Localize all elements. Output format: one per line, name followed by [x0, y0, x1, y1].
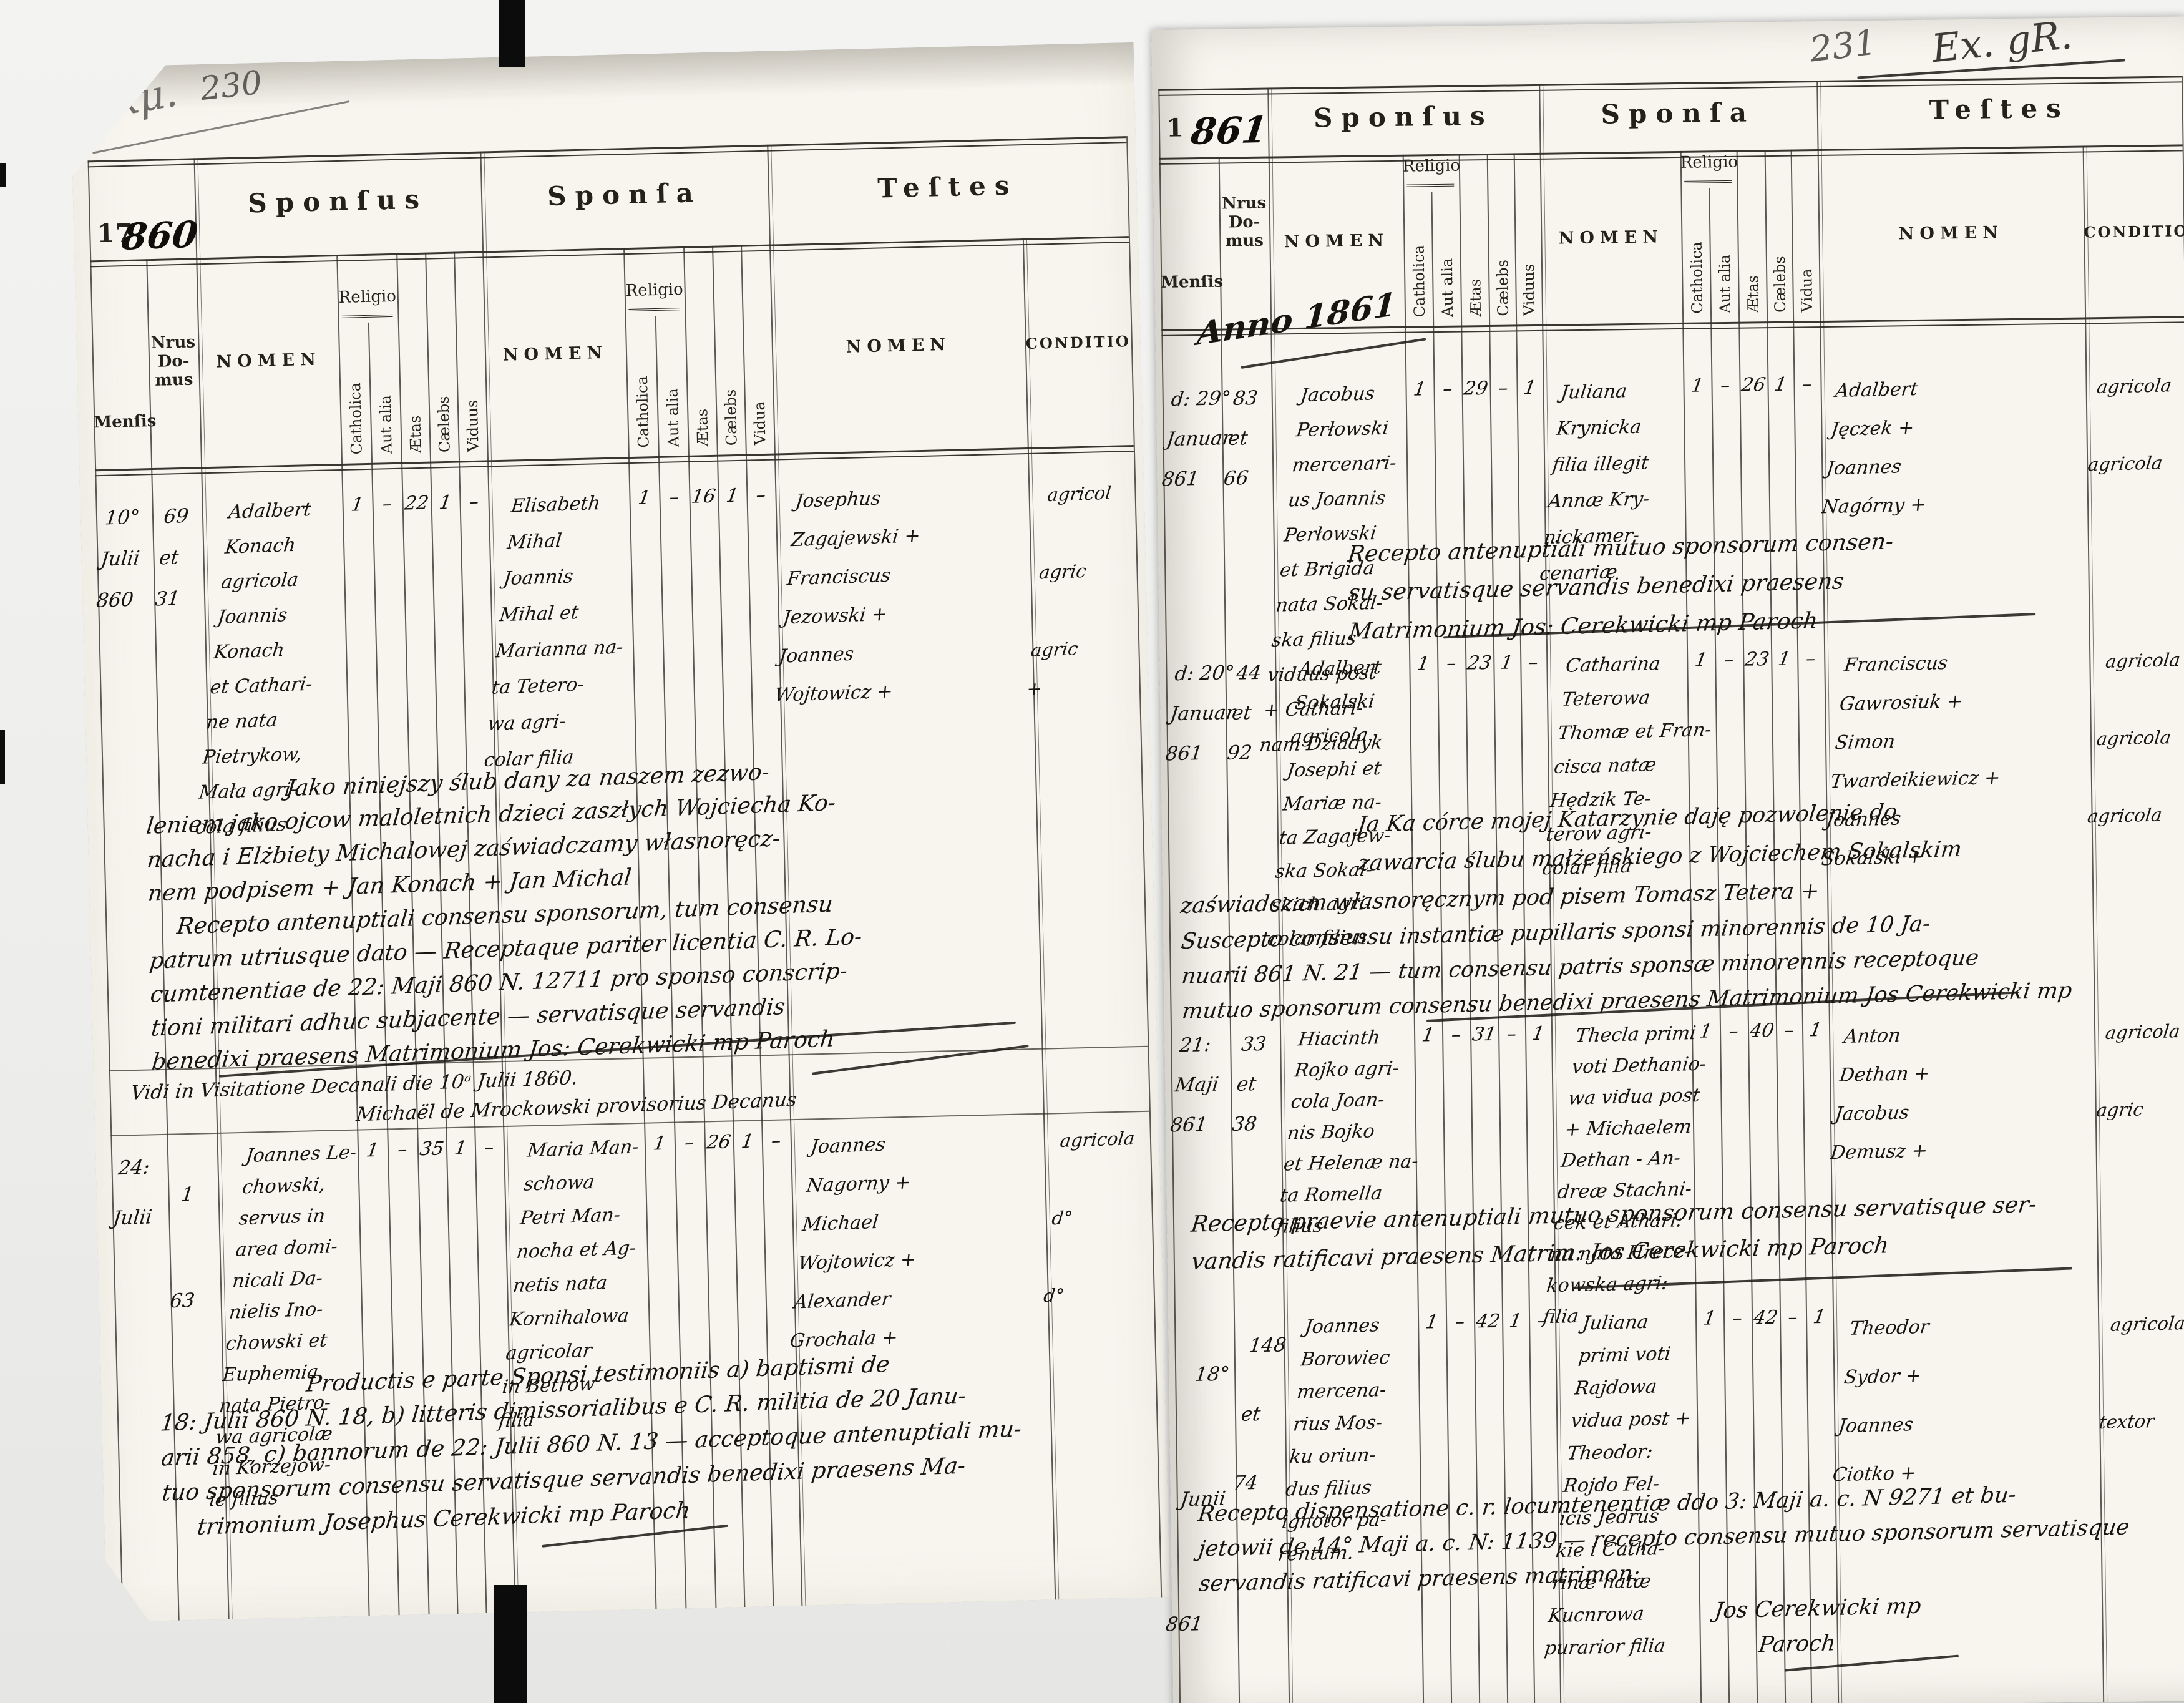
record-1-sponsus-mark: 22	[401, 492, 432, 514]
header-sponsa: Sponſa	[481, 176, 769, 213]
horizontal-rule	[90, 236, 1129, 267]
record-4-sponsa-nomen: Juliana primi voti Rajdowa vidua post + …	[1543, 1304, 1743, 1665]
record-1-sponsus-mark: –	[371, 493, 404, 515]
horizontal-rule	[1159, 144, 2183, 164]
header-sponsus: Sponſus	[1268, 100, 1540, 134]
header-aut-alia: Aut alia	[375, 331, 396, 454]
record-3-sponsa-mark: –	[1774, 1019, 1804, 1042]
header-viduus: Viduus	[461, 289, 482, 452]
record-1-sponsus-mark: 29	[1460, 378, 1492, 400]
record-3-sponsa-mark: –	[1718, 1020, 1750, 1043]
header-mensis: Menſis	[1161, 273, 1220, 292]
record-4-sponsus-mark: –	[1527, 1310, 1557, 1332]
header--tas: Ætas	[1743, 187, 1762, 313]
right-page-number: 231	[1808, 22, 1879, 70]
horizontal-rule	[95, 445, 1134, 476]
record-2-sponsus-mark: –	[1435, 652, 1467, 675]
record-1-sponsa-nomen: Elisabeth Mihal Joannis Mihal et Mariann…	[482, 483, 673, 779]
header-testes: Teſtes	[1816, 91, 2182, 127]
header-aut-alia: Aut alia	[1715, 197, 1733, 313]
record-1-sponsus-mark: 1	[1515, 377, 1545, 399]
record-4-sponsa-mark: 42	[1750, 1307, 1782, 1329]
header-nomen-testes: NOMEN	[1818, 222, 2084, 245]
note-line: su servatisque servandis benedixi praese…	[1347, 560, 2184, 607]
header-nomen-testes: NOMEN	[772, 333, 1026, 359]
record-1-sponsus-mark: –	[458, 490, 490, 513]
header-nrus-domus: Nrus Do- mus	[148, 333, 199, 390]
record-1-sponsa-mark: 1	[716, 485, 748, 507]
record-4-sponsus-mark: 1	[1416, 1311, 1448, 1334]
record-4-sponsa-mark: –	[1778, 1306, 1808, 1329]
record-4-sponsa-mark: 1	[1694, 1307, 1725, 1330]
record-4-sponsus-mark: –	[1444, 1310, 1476, 1333]
record-1-sponsa-mark: –	[745, 484, 777, 506]
record-1-sponsus-mark: 1	[429, 491, 461, 514]
header-conditio: CONDITIO	[2084, 222, 2183, 241]
header-viduus: Viduus	[1519, 190, 1538, 316]
header-sponsa: Sponſa	[1539, 96, 1818, 130]
year-handwritten: 861	[1188, 103, 1270, 159]
record-1-sponsus-mark: –	[1432, 378, 1464, 400]
record-4-sponsa-mark: –	[1722, 1307, 1753, 1330]
religio-underline-sponsus	[1406, 184, 1454, 187]
record-1-sponsa-mark: 1	[1682, 374, 1714, 397]
record-3-sponsus-mark: –	[1496, 1023, 1527, 1045]
header-sponsus: Sponſus	[195, 183, 482, 220]
record-1-sponsa-mark: 16	[688, 486, 719, 508]
record-2-sponsus-mark: –	[473, 1136, 505, 1159]
record-3-testes-conditio: agricola agric	[2094, 1011, 2184, 1130]
header-c-lebs: Cælebs	[719, 283, 740, 446]
record-2-sponsa-mark: –	[673, 1131, 706, 1154]
header-c-lebs: Cælebs	[1493, 190, 1512, 316]
record-1-sponsa-mark: –	[658, 486, 691, 509]
record-2-sponsus-mark: 1	[1491, 651, 1522, 674]
column-rule	[88, 160, 124, 1621]
header--tas: Ætas	[1465, 191, 1484, 316]
record-2-sponsa-mark: 1	[731, 1130, 763, 1153]
record-1-sponsa-mark: –	[1792, 373, 1823, 396]
header-nomen-sponsus: NOMEN	[1269, 230, 1403, 251]
note-line: Recepto antenuptiali mutuo sponsorum con…	[1347, 521, 2184, 568]
record-4-sponsus-mark: 42	[1472, 1310, 1504, 1333]
binding-ribbon-top	[499, 0, 525, 67]
year-handwritten: 860	[119, 208, 200, 265]
header-aut-alia: Aut alia	[1437, 200, 1456, 317]
header-c-lebs: Cælebs	[432, 290, 454, 453]
header-nomen-sponsa: NOMEN	[1541, 227, 1681, 248]
record-1-sponsus-mark: –	[1488, 377, 1519, 399]
header-religio-sponsus: Religio	[1403, 157, 1459, 176]
record-3-sponsus-mark: 1	[1523, 1023, 1553, 1045]
record-4-sponsus-mark: 1	[1500, 1310, 1531, 1332]
record-2-sponsus-mark: –	[386, 1138, 419, 1161]
religio-underline-sponsus	[341, 315, 392, 318]
record-1-testes-nomen: Josephus Zagajewski + Franciscus Jezowsk…	[773, 473, 1063, 715]
header-testes: Teſtes	[768, 167, 1128, 207]
note-line: Matrimonium Jos: Cerekwicki mp Paroch	[1347, 598, 2184, 646]
left-page-number: 230	[198, 64, 264, 109]
record-2-sponsa-mark: 1	[1685, 649, 1717, 671]
record-2-sponsus-mark: 1	[356, 1139, 389, 1161]
record-1-sponsa-mark: 1	[1766, 374, 1796, 396]
register-scan: Exμ. 230 17860SponſusSponſaTeſtesMenſisN…	[0, 0, 2184, 1703]
record-2-sponsa-mark: 1	[643, 1133, 676, 1155]
header-catholica: Catholica	[632, 324, 653, 448]
record-2-sponsa-mark: 23	[1741, 648, 1773, 671]
header-religio-sponsus: Religio	[337, 287, 397, 307]
record-4-sponsa-mark: 1	[1804, 1306, 1835, 1329]
header-nrus-domus: Nrus Do- mus	[1219, 194, 1269, 251]
header-nomen-sponsus: NOMEN	[198, 349, 339, 371]
record-2-sponsus-mark: 1	[444, 1137, 476, 1159]
header-mensis: Menſis	[94, 412, 150, 432]
record-2-sponsa-mark: 1	[1769, 648, 1799, 670]
header--tas: Ætas	[404, 290, 425, 454]
record-1-sponsa-mark: 1	[628, 487, 661, 509]
header-nomen-sponsa: NOMEN	[485, 343, 626, 365]
record-2-sponsa-mark: –	[760, 1130, 792, 1152]
header-religio-sponsa: Religio	[1680, 153, 1737, 172]
record-4-testes-nomen: Theodor Sydor + Joannes Ciotko +	[1830, 1298, 2130, 1500]
binding-ribbon-bottom	[494, 1585, 527, 1703]
horizontal-rule	[88, 136, 1127, 167]
header-aut-alia: Aut alia	[662, 324, 683, 447]
record-3-sponsa-mark: 40	[1746, 1020, 1778, 1042]
record-1-sponsa-mark: –	[1710, 374, 1742, 397]
right-page: 231 Ex. gR. 1861SponſusSponſaTeſtesMenſi…	[1151, 16, 2184, 1703]
record-3-sponsus-mark: –	[1440, 1023, 1472, 1046]
record-2-sponsa-mark: 26	[703, 1131, 734, 1153]
header-catholica: Catholica	[345, 331, 366, 455]
scan-edge-mark	[0, 730, 5, 784]
record-2-sponsa-mark: –	[1713, 649, 1745, 671]
header-vidua: Vidua	[1796, 187, 1816, 312]
religio-underline-sponsa	[628, 308, 680, 311]
header-vidua: Vidua	[748, 282, 769, 446]
record-3-sponsa-mark: 1	[1690, 1020, 1722, 1043]
record-1-sponsus-mark: 1	[1404, 378, 1436, 401]
header-conditio: CONDITIO	[1025, 332, 1131, 353]
record-2-sponsa-mark: –	[1795, 648, 1826, 670]
header-catholica: Catholica	[1409, 200, 1428, 317]
record-3-sponsus-mark: 31	[1468, 1023, 1500, 1046]
record-3-sponsa-mark: 1	[1800, 1019, 1831, 1042]
year-printed: 1	[1166, 113, 1185, 142]
record-3-testes-nomen: Anton Dethan + Jacobus Demusz +	[1828, 1011, 2125, 1173]
record-1-sponsa-mark: 26	[1738, 374, 1770, 396]
left-page: Exμ. 230 17860SponſusSponſaTeſtesMenſisN…	[70, 42, 1170, 1622]
note-line: Paroch	[1757, 1621, 2184, 1659]
record-1-sponsus-mark: 1	[341, 494, 374, 516]
header-catholica: Catholica	[1687, 197, 1705, 313]
scan-edge-mark	[0, 163, 6, 187]
record-2-sponsus-mark: 1	[1407, 653, 1439, 675]
record-2-sponsus-mark: 35	[416, 1138, 447, 1160]
record-2-testes-nomen: Joannes Nagorny + Michael Wojtowicz + Al…	[788, 1119, 1079, 1361]
record-2-sponsus-mark: –	[1518, 651, 1548, 674]
left-corner-scribble: Exμ.	[84, 69, 181, 131]
header--tas: Ætas	[690, 283, 711, 447]
header-religio-sponsa: Religio	[624, 280, 685, 300]
header-c-lebs: Cælebs	[1770, 187, 1789, 313]
religio-underline-sponsa	[1684, 180, 1732, 183]
record-2-testes-conditio: agricola d° d°	[1041, 1118, 1164, 1315]
record-3-sponsus-mark: 1	[1412, 1024, 1444, 1047]
record-2-sponsa-nomen: Maria Man- schowa Petri Man- nocha et Ag…	[497, 1129, 689, 1438]
right-corner-scribble: Ex. gR.	[1929, 12, 2074, 71]
record-1-testes-nomen: Adalbert Jęczek + Joannes Nagórny +	[1820, 365, 2116, 527]
record-2-sponsus-mark: 23	[1463, 652, 1495, 675]
record-1-testes-conditio: agricola agricola	[2085, 365, 2184, 484]
